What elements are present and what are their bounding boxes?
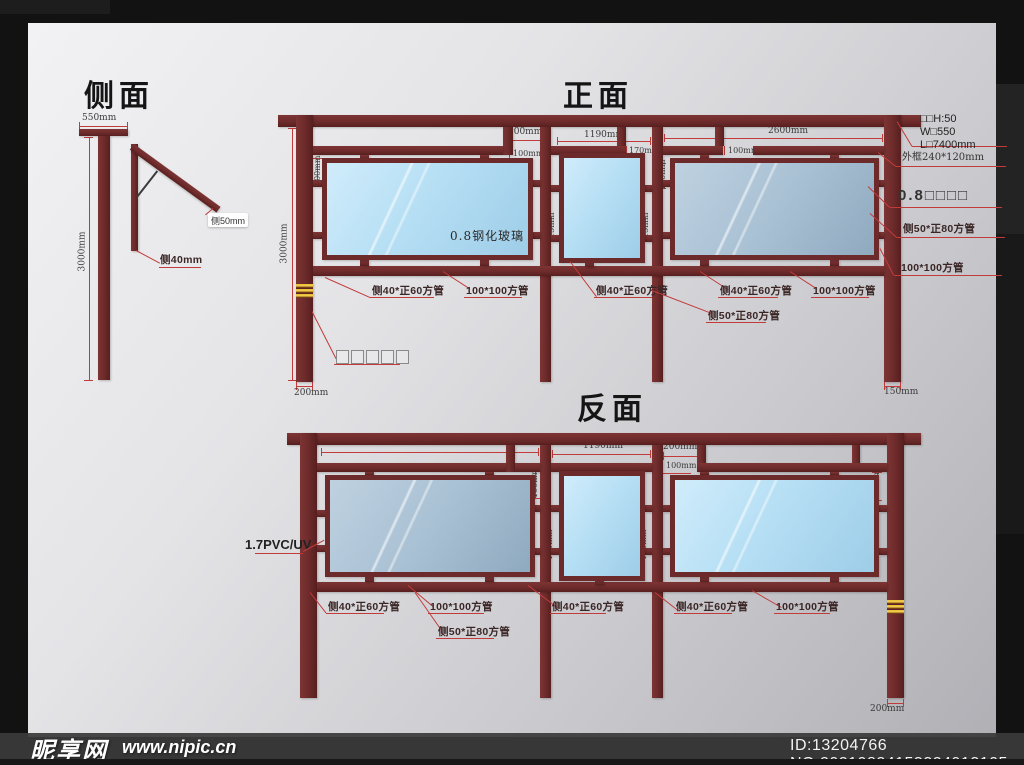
back-right-post [887,433,904,698]
structure-bar [645,548,652,555]
structure-bar [645,235,652,242]
spec-note: L□7400mm [920,140,976,151]
back-divider-2 [652,445,663,698]
structure-bar [700,577,709,582]
graphic-element [396,350,409,364]
graphic-element [336,350,349,364]
dimension-text: 200mm [508,128,542,137]
glass-pane [675,163,874,255]
dimension-line [882,134,883,142]
dimension-text: 200mm [870,705,904,714]
dimension-line [664,134,665,142]
back-left-post [300,433,317,698]
glass-pane [564,476,640,576]
dimension-line [552,454,651,455]
structure-bar [365,577,374,582]
dimension-line [370,297,434,298]
structure-bar [663,180,670,187]
structure-bar [645,505,652,512]
glass-note: 0.8□□□□ [898,188,969,203]
graphic-element [351,350,364,364]
dimension-line [897,237,1005,238]
glass-reflection [675,163,874,255]
back-top-rail [515,463,540,472]
tube-label: 侧40*正60方管 [552,602,624,613]
front-top-rail [313,146,503,155]
dimension-line [334,364,400,365]
back-divider-1 [540,445,551,698]
front-panel-left [322,158,533,260]
front-view-title: 正面 [563,82,633,112]
back-panel-left [325,475,535,577]
structure-bar [533,180,540,187]
tube-label: 100*100方管 [466,286,529,297]
tube-label: 侧40*正60方管 [720,286,792,297]
frame-step [996,234,1024,534]
dimension-line [428,613,484,614]
front-panel-right [670,158,879,260]
structure-bar [830,577,839,582]
structure-bar [551,505,559,512]
pvc-label: 1.7PVC/UV [245,538,311,551]
glass-reflection [330,480,530,572]
tube-label: 侧50*正80方管 [708,311,780,322]
structure-bar [879,548,887,555]
back-connector [852,445,860,463]
structure-bar [830,260,839,266]
glass-pane [675,480,874,572]
structure-bar [663,505,670,512]
frame-step [996,84,1024,234]
side-view-title: 侧面 [84,82,154,112]
side-50-tag: 侧50mm [208,213,248,227]
graphic-element [381,350,394,364]
dimension-line [436,638,494,639]
dimension-text: 150mm [884,388,918,397]
structure-bar [485,577,494,582]
structure-bar [535,548,540,555]
structure-bar [535,505,540,512]
front-right-post [884,115,901,382]
dimension-text: 3000mm [281,226,290,264]
structure-bar [663,548,670,555]
tube-label: 侧40*正60方管 [372,286,444,297]
dimension-line [650,137,651,145]
glass-reflection [675,480,874,572]
dimension-text: 550mm [82,114,116,123]
dimension-line [663,456,697,457]
dimension-text: 3000mm [79,234,88,272]
dimension-line [255,553,303,554]
structure-bar [551,235,559,242]
dimension-line [326,613,384,614]
dimension-line [550,613,606,614]
structure-bar [551,548,559,555]
front-panel-middle [559,153,645,263]
back-view-title: 反面 [577,395,647,425]
front-connector [503,127,513,155]
structure-bar [360,260,369,266]
back-connector [697,445,706,463]
frame-note: 外框240*120mm [902,153,984,163]
front-divider-1 [540,127,551,382]
back-top-rail [317,463,506,472]
dimension-text: 200mm [294,389,328,398]
front-top-rail [663,146,723,155]
dimension-line [464,297,522,298]
tube-label: 侧40*正60方管 [328,602,400,613]
structure-bar [700,260,709,266]
front-top-rail [753,146,884,155]
dimension-line [896,166,1006,167]
structure-bar [317,545,325,552]
watermark-url: www.nipic.cn [122,737,236,758]
front-divider-2 [652,127,663,382]
dimension-line [674,613,732,614]
structure-bar [533,232,540,239]
warning-stripes [296,284,313,298]
tube-note: 侧50*正80方管 [903,224,975,235]
back-panel-right [670,475,879,577]
dimension-line [292,128,293,381]
anchor-boxes [336,350,409,364]
structure-bar [879,505,887,512]
frame-step [0,759,1024,765]
dimension-line [84,380,93,381]
warning-stripes [887,600,904,614]
dimension-line [557,137,558,145]
back-connector [506,445,515,472]
spec-note: W□550 [920,127,955,138]
dimension-line [706,322,766,323]
dimension-line [774,613,830,614]
front-left-post [296,115,313,382]
dimension-line [557,141,651,142]
tube-label: 100*100方管 [776,602,839,613]
glass-pane [564,158,640,258]
dimension-line [650,450,651,458]
back-top-rail [697,463,887,472]
dimension-line [663,452,664,460]
dimension-line [894,275,1002,276]
dimension-line [552,450,553,458]
dimension-line [664,138,883,139]
dimension-line [84,137,93,138]
front-bottom-rail [313,266,884,276]
graphic-element [366,350,379,364]
tube-note: 100*100方管 [901,263,964,274]
structure-bar [480,260,489,266]
structure-bar [663,232,670,239]
dimension-line [663,473,691,474]
structure-bar [551,185,559,192]
dimension-line [890,207,1002,208]
frame-step [0,0,110,14]
dimension-line [538,448,539,456]
side-post [98,136,110,380]
structure-bar [313,180,322,187]
back-panel-middle [559,471,645,581]
structure-bar [317,510,325,517]
front-connector [617,127,626,146]
dimension-text: 100mm [666,462,696,470]
dimension-line [296,386,313,387]
dimension-line [594,297,652,298]
back-top-bar [287,433,921,445]
dimension-line [718,297,778,298]
drawing-sheet: 侧面 550mm 3000mm 侧50mm 侧40mm 正面 3000mm 20… [0,0,1024,765]
structure-bar [585,263,594,267]
spec-note: □□H:50 [920,114,957,125]
tube-label: 100*100方管 [813,286,876,297]
tube-label: 100*100方管 [430,602,493,613]
glass-spec-text: 0.8钢化玻璃 [450,230,524,242]
dimension-line [79,126,128,127]
dimension-text: 100mm [513,150,543,158]
side-40-tag: 侧40mm [160,255,202,266]
dimension-text: 2600mm [768,127,808,136]
structure-bar [595,581,604,585]
tube-label: 侧50*正80方管 [438,627,510,638]
dimension-line [321,448,322,456]
dimension-line [89,137,90,381]
structure-bar [645,185,652,192]
structure-bar [879,232,884,239]
structure-bar [313,232,322,239]
front-connector [715,127,724,146]
side-top-cap [79,129,128,136]
glass-pane [330,480,530,572]
structure-bar [879,180,884,187]
dimension-line [811,297,869,298]
tube-label: 侧40*正60方管 [676,602,748,613]
front-top-bar [278,115,921,127]
dimension-line [724,146,725,155]
dimension-line [159,267,201,268]
